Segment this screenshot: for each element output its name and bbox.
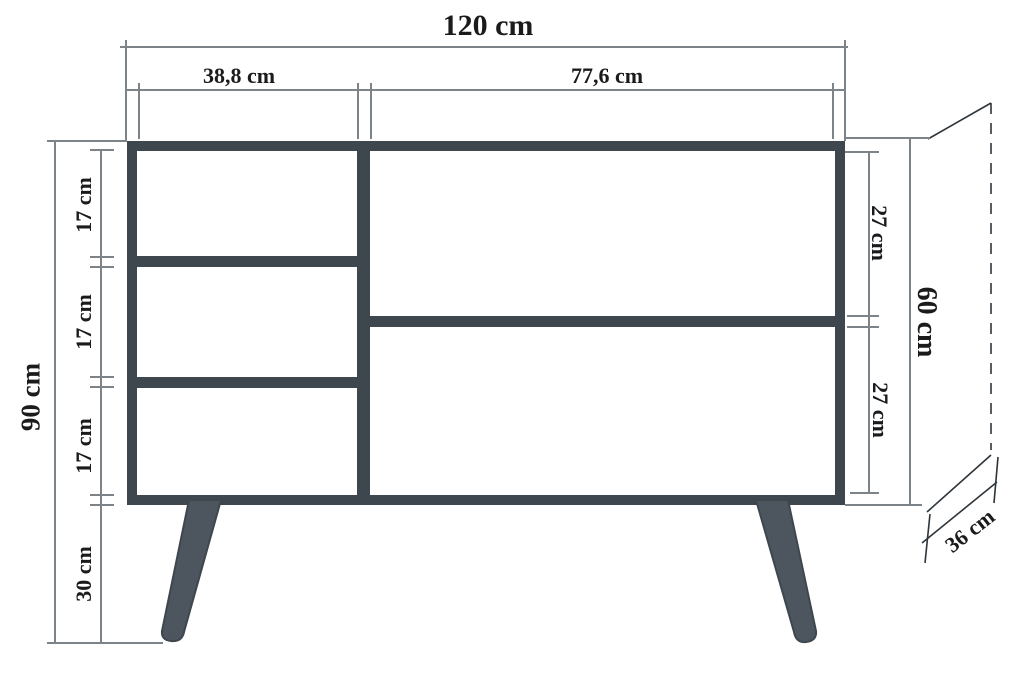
dim-line-compartments-left	[100, 150, 102, 643]
dim-tick	[90, 256, 114, 258]
ext-line-right-inner-bottom	[850, 492, 879, 494]
ext-line-inner-left	[138, 83, 140, 139]
ext-line-right-bottom	[845, 504, 922, 506]
ext-line-left-bottom	[47, 642, 163, 644]
right-leg	[756, 500, 816, 642]
ext-line-right-top	[845, 137, 930, 139]
legs-and-depth-lines	[0, 0, 1020, 676]
dim-tick	[90, 504, 114, 506]
dim-line-sections	[126, 89, 846, 91]
left-leg	[162, 500, 221, 641]
dim-tick	[90, 376, 114, 378]
ext-line-inner-right	[832, 83, 834, 139]
dim-label-right-bottom: 27 cm	[869, 382, 891, 438]
ext-line-top-right	[844, 40, 846, 141]
dim-tick	[90, 149, 114, 151]
depth-tick-right	[994, 457, 998, 503]
dim-line-total-height	[54, 140, 56, 644]
ext-line-divider-left	[357, 83, 359, 139]
dim-label-right-section: 77,6 cm	[571, 65, 643, 87]
dim-line-compartments-right	[868, 151, 870, 494]
dim-label-compartment-1: 17 cm	[73, 177, 95, 233]
ext-line-right-shelf-bottom	[847, 326, 879, 328]
depth-bottom-edge-line	[927, 455, 991, 512]
ext-line-top-left	[125, 40, 127, 141]
dim-tick	[90, 386, 114, 388]
dim-tick	[90, 266, 114, 268]
dim-tick	[90, 494, 114, 496]
dim-label-body-height: 60 cm	[912, 287, 940, 358]
dim-label-left-section: 38,8 cm	[203, 65, 275, 87]
dim-label-compartment-2: 17 cm	[73, 294, 95, 350]
dim-label-right-top: 27 cm	[868, 205, 890, 261]
dim-label-total-height: 90 cm	[18, 363, 45, 431]
ext-line-divider-right	[370, 83, 372, 139]
dim-label-total-width: 120 cm	[443, 11, 534, 41]
ext-line-right-inner-top	[845, 151, 879, 153]
dim-label-leg-height: 30 cm	[73, 546, 95, 602]
dim-label-compartment-3: 17 cm	[73, 418, 95, 474]
dim-line-total-width	[120, 46, 848, 48]
ext-line-right-shelf-top	[847, 315, 879, 317]
depth-tick-left	[925, 514, 930, 563]
ext-line-left-top	[47, 140, 127, 142]
depth-top-edge-line	[928, 103, 991, 139]
furniture-dimension-diagram: 120 cm 38,8 cm 77,6 cm 90 cm 17 cm 17 cm…	[0, 0, 1020, 676]
